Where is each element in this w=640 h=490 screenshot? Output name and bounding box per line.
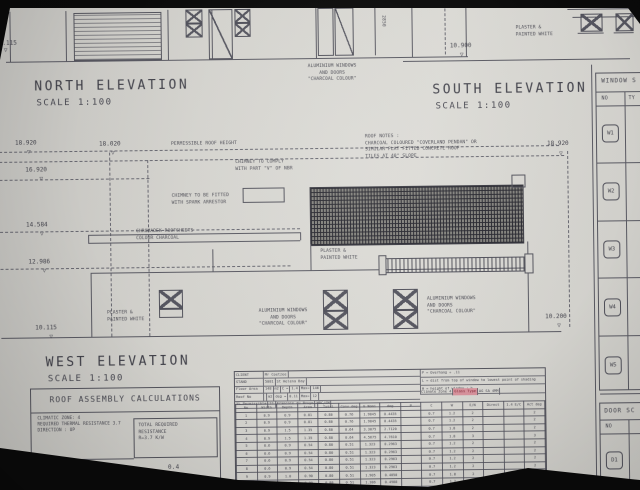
- west-elevation-title: WEST ELEVATION: [46, 354, 191, 373]
- window-schedule-row: W5: [599, 336, 640, 394]
- glazing-info-cell: C =: [281, 386, 291, 393]
- window: [393, 289, 418, 310]
- dim-arrow-icon: [43, 268, 47, 274]
- dim-label: 18.020: [99, 140, 121, 148]
- glazing-info-cell: m2: [273, 386, 280, 392]
- aluminium-windows-note-right: ALUMINIUM WINDOWS AND DOORS "CHARCOAL CO…: [427, 296, 476, 317]
- entrance-door: [208, 9, 233, 59]
- window-schedule-rows: W1W2W3W4W5: [597, 105, 640, 390]
- wall-line: [65, 11, 67, 61]
- photo-of-architectural-drawing: 0.115 NORTH ELEVATION SCALE 1:100 2850 1…: [0, 0, 640, 490]
- dim-line: [444, 8, 446, 54]
- roof-calc-title: ROOF ASSEMBLY CALCULATIONS: [31, 393, 219, 406]
- glazing-info-cell: CLIENT: [235, 372, 264, 379]
- dim-arrow-icon: [27, 150, 31, 156]
- window: [580, 14, 602, 32]
- plaster-note-left: PLASTER & PAINTED WHITE: [107, 310, 144, 324]
- climate-zone-label: Climate Zone 4: [420, 389, 453, 396]
- chimney-spark-note: CHIMNEY TO BE FITTED WITH SPARK ARRESTOR: [172, 193, 229, 207]
- dim-arrow-icon: [460, 52, 464, 58]
- west-ground-line: [1, 331, 561, 339]
- glazing-info-cell: 1.4: [290, 386, 300, 393]
- balustrade-post: [524, 253, 533, 273]
- window: [615, 13, 633, 31]
- dim-arrow-icon: [4, 48, 8, 54]
- aluminium-windows-note-left: ALUMINIUM WINDOWS AND DOORS "CHARCOAL CO…: [251, 308, 315, 329]
- window: [323, 290, 348, 311]
- dim-arrow-icon: [49, 334, 53, 340]
- divider-line: [596, 91, 640, 93]
- window-sill-line: [578, 33, 604, 34]
- wall-line: [91, 273, 93, 337]
- dim-arrow-icon: [39, 176, 43, 182]
- door-frame: [334, 8, 354, 56]
- glazing-info-cell: Floor Area: [235, 386, 264, 393]
- window: [234, 9, 250, 23]
- dim-line: [109, 153, 112, 337]
- glazing-info-cell: Max=: [300, 393, 312, 400]
- south-ground-line: [403, 58, 630, 62]
- glazing-info-cell: STAND: [235, 379, 264, 386]
- glazing-info-cell: Max=: [300, 386, 312, 393]
- window-sill-line: [614, 32, 634, 33]
- dim-line: [567, 151, 570, 327]
- window-schedule-col-type: TY: [628, 95, 635, 102]
- window-bottom-pane: [159, 309, 183, 318]
- north-elevation-title: NORTH ELEVATION: [34, 78, 189, 97]
- window-ref-badge: W2: [603, 183, 620, 201]
- roof-line: [567, 8, 629, 10]
- door-ref-badge: D1: [606, 451, 623, 469]
- dim-arrow-icon: [559, 151, 563, 157]
- plaster-note-mid: PLASTER & PAINTED WHITE: [320, 249, 357, 263]
- dim-label: 14.584: [26, 221, 48, 229]
- wall-line: [212, 249, 213, 271]
- wall-line: [310, 244, 311, 270]
- vertical-dim-label: 2850: [379, 15, 385, 27]
- window: [185, 9, 202, 23]
- roof-calc-lines: CLIMATIC ZONE: 4 REQUIRED THERMAL RESIST…: [37, 415, 121, 435]
- aluminium-windows-note: ALUMINIUM WINDOWS AND DOORS "CHARCOAL CO…: [286, 63, 378, 84]
- glass-type-label-highlighted: Glass Type: [453, 388, 478, 395]
- dim-arrow-icon: [40, 231, 44, 237]
- chimney: [243, 187, 285, 203]
- garage-door: [73, 12, 162, 61]
- window-ref-badge: W1: [602, 125, 619, 143]
- dim-label: 16.920: [25, 166, 47, 174]
- door-schedule-col-no: NO: [605, 423, 612, 430]
- glazing-info-cell: 5081: [264, 379, 276, 386]
- window-ref-badge: W4: [604, 298, 621, 316]
- glazing-info-cell: St Helena Bay: [276, 379, 307, 386]
- glazing-info-cell: 148: [264, 386, 274, 393]
- chimney-comply-note: CHIMNEY TO COMPLY WITH PART "V" OF NBR: [235, 159, 292, 173]
- glazing-info-cell: 12: [312, 393, 319, 399]
- level-line-16920: [0, 178, 149, 181]
- dim-label: 10.900: [450, 42, 472, 50]
- window-frame: [317, 8, 334, 56]
- window-schedule-panel: WINDOW S NO TY W1W2W3W4W5: [595, 72, 640, 391]
- r-value: 0.4: [168, 464, 180, 472]
- window: [323, 311, 348, 330]
- chimney-cap: [511, 174, 525, 187]
- wall-line: [374, 7, 376, 55]
- dim-line: [147, 160, 150, 336]
- window: [235, 23, 251, 37]
- balustrade-post: [378, 255, 386, 275]
- window-schedule-row: W2: [597, 163, 640, 221]
- dim-label: 0.115: [0, 40, 17, 48]
- glazing-info-cell: 0.11: [288, 393, 300, 400]
- glazing-info-cell: Roof No: [235, 394, 264, 401]
- dim-label: 18.920: [547, 140, 569, 148]
- dim-label: 18.920: [15, 139, 37, 147]
- total-resistance-text: TOTAL REQUIRED RESISTANCE R=3.7 K/W: [138, 423, 178, 443]
- roofsheet-edge: [300, 232, 301, 240]
- dim-label: 12.986: [28, 258, 50, 266]
- glazing-climate-row: Climate Zone 4 Glass Type AG SA 4MM: [420, 387, 545, 395]
- door-schedule-title: DOOR SC: [604, 407, 635, 415]
- window-schedule-title: WINDOW S: [601, 77, 636, 85]
- total-resistance-box: TOTAL REQUIRED RESISTANCE R=3.7 K/W: [133, 417, 217, 458]
- wall-line: [167, 10, 169, 60]
- door-schedule-panel: DOOR SC NO D1: [599, 402, 640, 489]
- divider-line: [31, 410, 219, 413]
- permissible-roof-height-label: PERMISSIBLE ROOF HEIGHT: [171, 141, 237, 148]
- tiled-roof-hatch: [310, 185, 525, 247]
- dim-label: 10.115: [35, 324, 57, 332]
- wall-line: [9, 12, 11, 62]
- glazing-info-cell: deg =: [274, 394, 288, 401]
- dim-arrow-icon: [111, 151, 115, 157]
- chromadek-note: CHROMADEK ROOFSHEETS COLOUR CHARCOAL: [136, 229, 193, 243]
- glazing-calc-panel: CLIENTMr CoetzeeSTAND5081St Helena BayFl…: [234, 367, 547, 490]
- drawing-content: 0.115 NORTH ELEVATION SCALE 1:100 2850 1…: [0, 4, 640, 490]
- wall-line: [411, 7, 413, 57]
- dim-label: 10.200: [545, 313, 567, 321]
- window-ref-badge: W5: [605, 356, 622, 374]
- dim-arrow-icon: [557, 323, 561, 329]
- roofsheet-line: [88, 240, 300, 244]
- window: [393, 310, 418, 329]
- window-schedule-row: W4: [599, 278, 640, 336]
- plaster-note: PLASTER & PAINTED WHITE: [516, 25, 553, 39]
- glazing-info-cell: 146: [311, 386, 321, 393]
- window-schedule-row: W3: [598, 221, 640, 279]
- window: [159, 290, 183, 309]
- window-ref-badge: W3: [603, 240, 620, 258]
- glazing-info-cell: Mr Coetzee: [264, 371, 289, 378]
- drawing-sheet: 0.115 NORTH ELEVATION SCALE 1:100 2850 1…: [0, 8, 640, 490]
- balustrade-hatch: [383, 256, 525, 273]
- window-schedule-col-no: NO: [601, 95, 608, 102]
- roofsheet-edge: [88, 235, 89, 243]
- roofsheet-line: [88, 232, 300, 236]
- divider-line: [600, 419, 640, 421]
- west-elevation-scale: SCALE 1:100: [48, 373, 124, 386]
- glazing-info-cell: m2: [267, 394, 274, 400]
- roof-notes: ROOF NOTES : CHARCOAL COLOURED "COVERLAN…: [365, 133, 477, 161]
- window-schedule-row: W1: [597, 105, 640, 163]
- south-elevation-title: SOUTH ELEVATION: [432, 81, 587, 100]
- glass-type-value: AG SA 4MM: [478, 388, 501, 395]
- south-elevation-scale: SCALE 1:100: [436, 101, 512, 114]
- window: [186, 23, 203, 37]
- north-elevation-scale: SCALE 1:100: [36, 98, 112, 111]
